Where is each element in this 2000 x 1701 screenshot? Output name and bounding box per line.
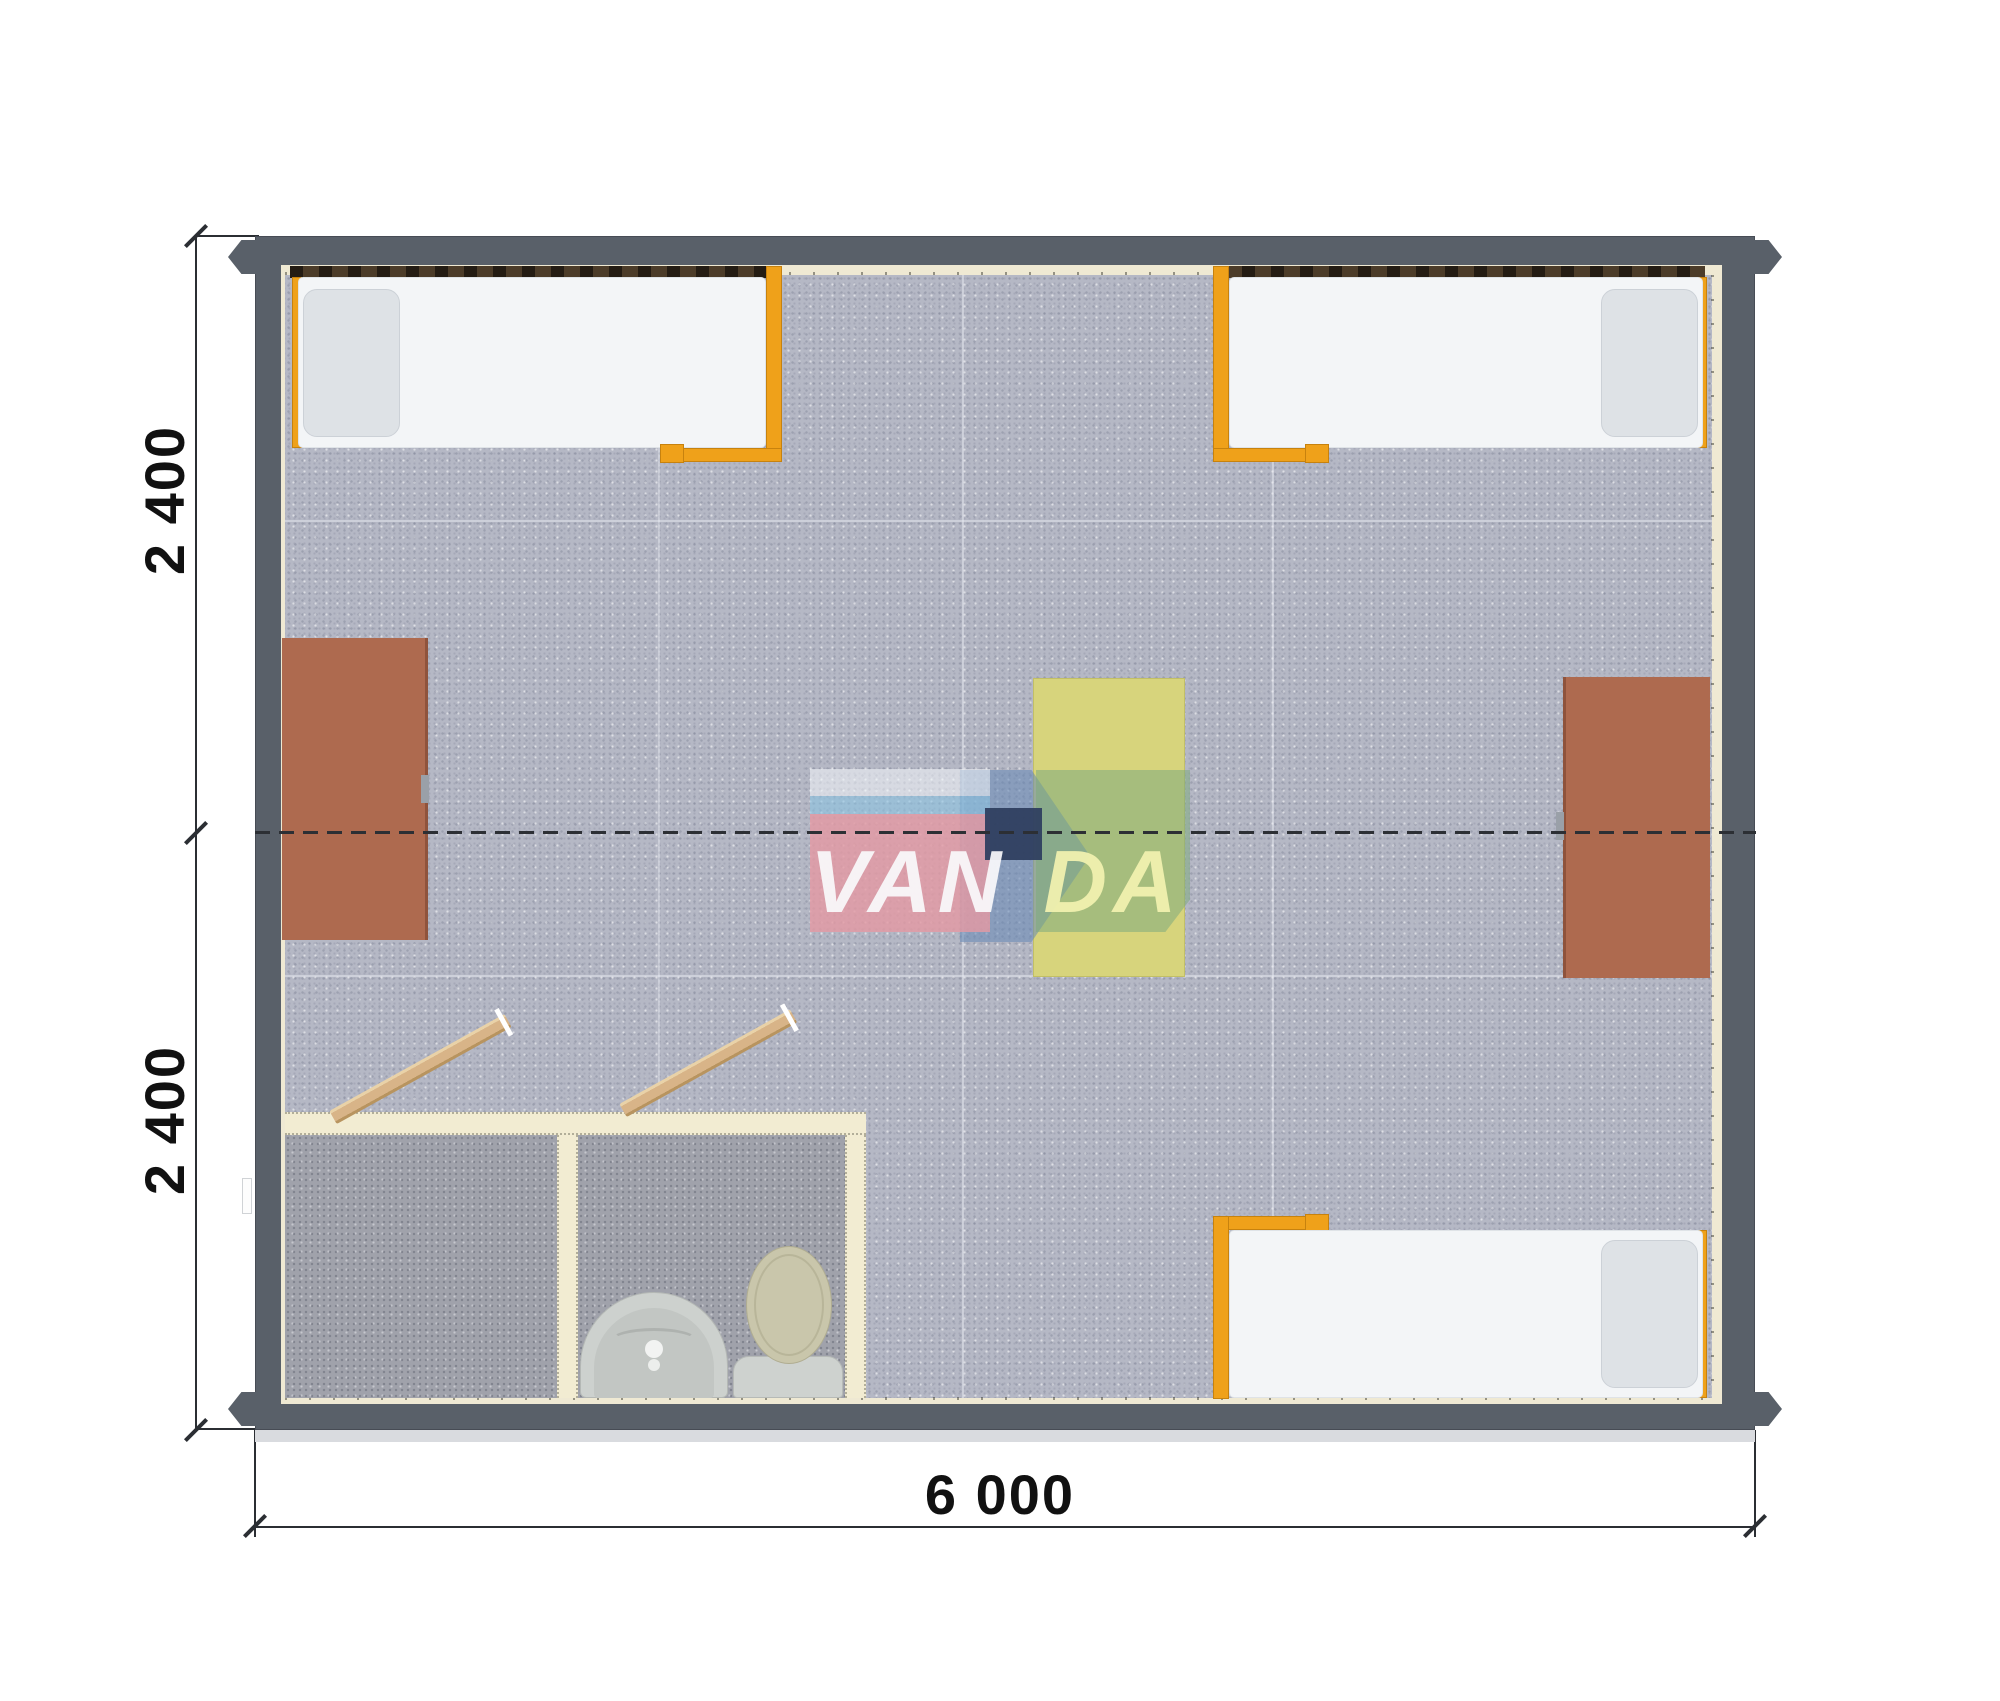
bed-bottom-right-frame-foot	[1213, 1216, 1229, 1399]
floor-seam	[285, 520, 1712, 522]
bed-top-right-frame-cap	[1305, 444, 1329, 463]
module-joint-centerline	[255, 831, 1756, 834]
extension-line-bottom-left	[195, 1428, 259, 1430]
desk-left-handle	[421, 775, 429, 803]
sink-faucet	[645, 1340, 663, 1358]
watermark-text-right: DA	[1036, 838, 1190, 926]
floor-plan-canvas: 2 400 2 400 6 000	[0, 0, 2000, 1701]
left-wall-corrugation	[248, 275, 254, 1415]
desk-left	[282, 638, 428, 940]
desk-right	[1563, 677, 1710, 978]
shower-room-floor	[285, 1135, 557, 1398]
bed-top-left-frame-foot	[766, 266, 782, 461]
dimension-line-bottom	[255, 1526, 1756, 1528]
dimension-label-bottom: 6 000	[850, 1462, 1150, 1522]
dimension-label-left-bottom: 2 400	[132, 1000, 192, 1240]
floor-seam	[285, 975, 1712, 977]
extension-line-top-left	[195, 235, 259, 237]
toilet-lid-inner	[754, 1254, 824, 1356]
corner-arrow-bottom-right	[1750, 1392, 1782, 1426]
bottom-wall-shadow	[255, 1430, 1755, 1442]
corner-arrow-top-left	[228, 240, 260, 274]
corner-arrow-top-right	[1750, 240, 1782, 274]
watermark-box-top-white	[810, 769, 990, 796]
watermark-box-top-blue	[810, 796, 990, 814]
bathroom-partition-vertical	[557, 1135, 578, 1398]
corner-arrow-bottom-left	[228, 1392, 260, 1426]
bed-top-left-frame-bottom	[668, 448, 782, 462]
bed-bottom-right-pillow	[1601, 1240, 1698, 1388]
watermark-text-left: VAN	[810, 838, 990, 926]
bed-top-right-pillow	[1601, 289, 1698, 437]
bathroom-wall-horizontal	[285, 1112, 866, 1135]
dimension-label-left-top: 2 400	[132, 380, 192, 620]
bathroom-wall-right	[845, 1135, 866, 1398]
bed-top-right-frame-foot	[1213, 266, 1229, 461]
exterior-door-handle	[242, 1178, 252, 1214]
bed-top-left-pillow	[303, 289, 400, 437]
watermark-logo: VAN DA	[780, 760, 1210, 950]
liner-ticks-right	[1711, 275, 1714, 1398]
desk-right-handle	[1556, 812, 1564, 840]
bed-top-left-frame-cap	[660, 444, 684, 463]
